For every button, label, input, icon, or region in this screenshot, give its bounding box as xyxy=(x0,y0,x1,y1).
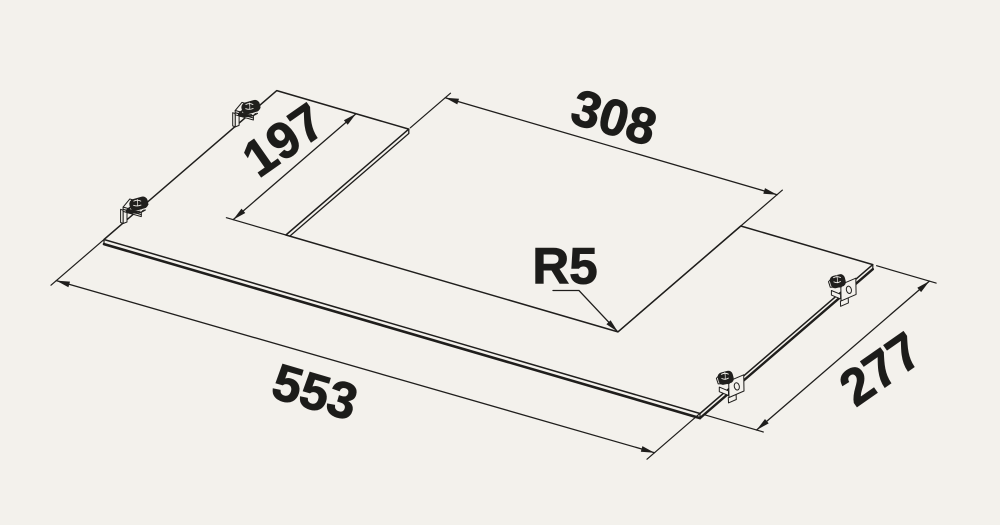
svg-text:308: 308 xyxy=(565,78,663,157)
svg-text:R5: R5 xyxy=(532,238,597,295)
svg-text:277: 277 xyxy=(829,321,931,416)
